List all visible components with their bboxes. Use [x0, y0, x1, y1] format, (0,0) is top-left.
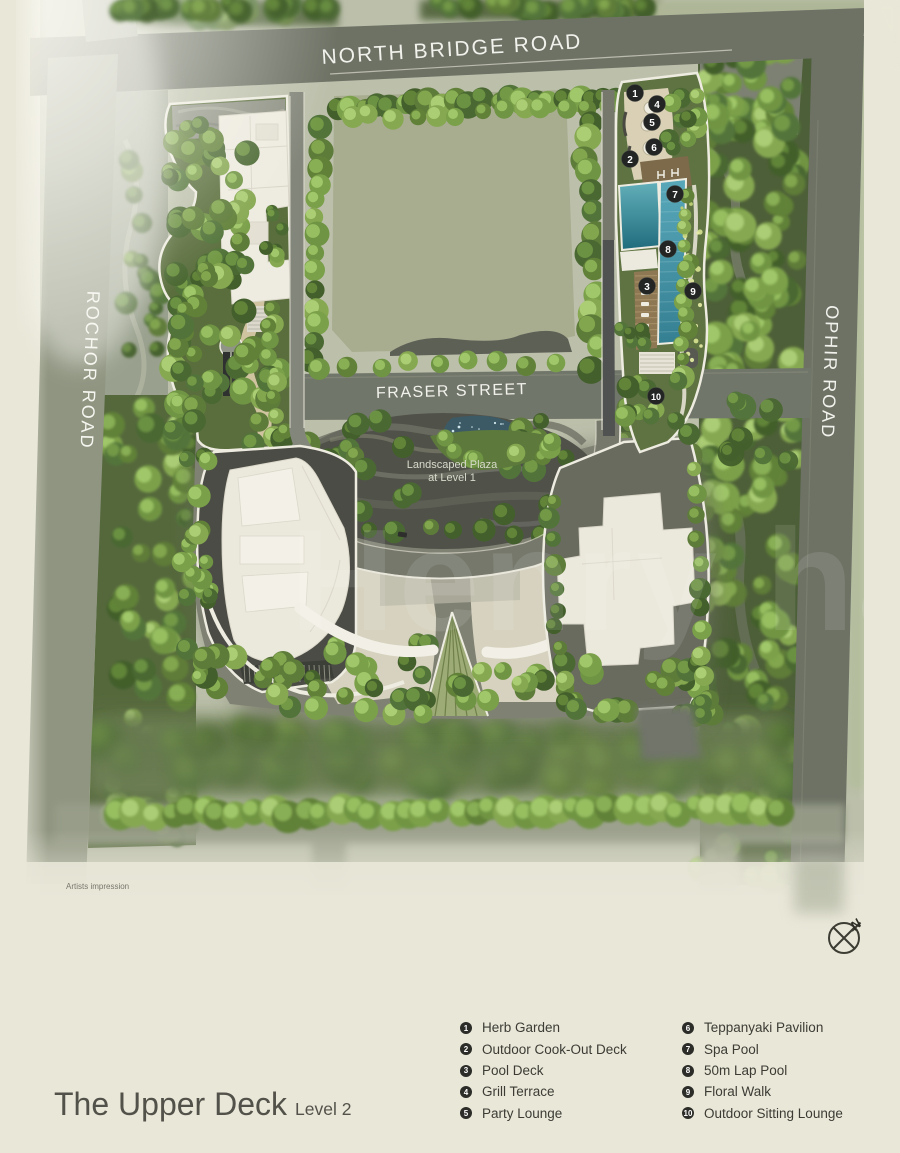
svg-text:1: 1	[464, 1024, 469, 1033]
svg-text:Artists impression: Artists impression	[66, 882, 129, 891]
svg-text:3: 3	[464, 1066, 469, 1075]
svg-text:2: 2	[464, 1045, 469, 1054]
svg-text:6: 6	[651, 143, 657, 154]
svg-text:10: 10	[651, 392, 661, 402]
svg-text:Herb Garden: Herb Garden	[482, 1020, 560, 1035]
svg-text:9: 9	[686, 1088, 691, 1097]
svg-text:6: 6	[686, 1024, 691, 1033]
svg-text:1: 1	[632, 89, 638, 100]
svg-text:The Upper Deck: The Upper Deck	[54, 1086, 288, 1122]
svg-text:Outdoor Sitting Lounge: Outdoor Sitting Lounge	[704, 1106, 843, 1121]
svg-text:7: 7	[686, 1045, 691, 1054]
svg-text:5: 5	[649, 118, 655, 129]
svg-text:Henry ha: Henry ha	[290, 499, 900, 661]
svg-text:at Level 1: at Level 1	[428, 472, 476, 484]
svg-text:Landscaped Plaza: Landscaped Plaza	[407, 459, 498, 471]
svg-text:3: 3	[644, 282, 650, 293]
svg-text:Pool Deck: Pool Deck	[482, 1063, 544, 1078]
svg-text:Grill Terrace: Grill Terrace	[482, 1084, 555, 1099]
svg-text:10: 10	[684, 1109, 693, 1118]
svg-text:50m Lap Pool: 50m Lap Pool	[704, 1063, 787, 1078]
svg-text:8: 8	[686, 1066, 691, 1075]
svg-text:9: 9	[690, 287, 696, 298]
svg-text:Floral Walk: Floral Walk	[704, 1084, 771, 1099]
svg-text:4: 4	[464, 1088, 469, 1097]
svg-text:8: 8	[665, 245, 671, 256]
svg-text:Outdoor Cook-Out Deck: Outdoor Cook-Out Deck	[482, 1042, 627, 1057]
svg-text:Spa Pool: Spa Pool	[704, 1042, 759, 1057]
svg-text:4: 4	[654, 100, 660, 111]
svg-text:5: 5	[464, 1109, 469, 1118]
svg-text:Teppanyaki Pavilion: Teppanyaki Pavilion	[704, 1020, 823, 1035]
svg-text:Party Lounge: Party Lounge	[482, 1106, 562, 1121]
svg-text:Level 2: Level 2	[295, 1099, 351, 1119]
svg-text:7: 7	[672, 190, 678, 201]
svg-text:2: 2	[627, 155, 633, 166]
